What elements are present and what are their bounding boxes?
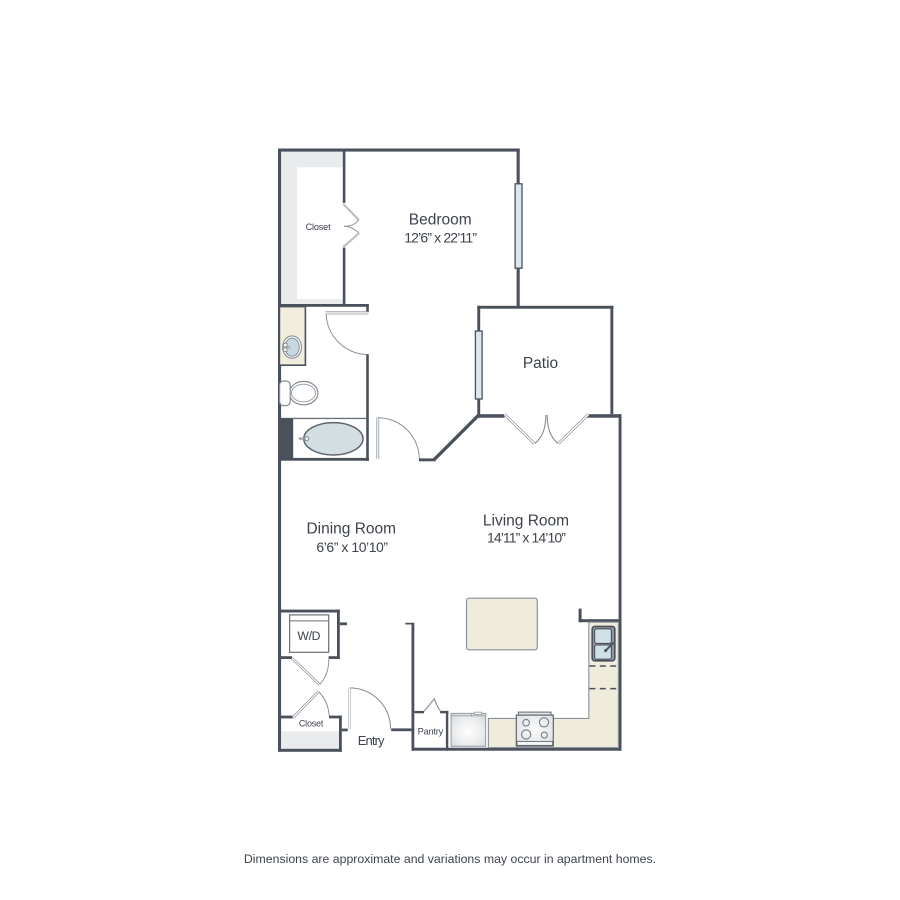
svg-text:Patio: Patio <box>523 355 558 372</box>
svg-text:Dining Room: Dining Room <box>306 520 396 537</box>
svg-text:Pantry: Pantry <box>418 727 444 737</box>
svg-text:Bedroom: Bedroom <box>409 212 472 229</box>
svg-text:Entry: Entry <box>358 733 385 748</box>
svg-text:Living Room: Living Room <box>483 512 569 529</box>
svg-text:6’6” x 10’10”: 6’6” x 10’10” <box>316 539 388 555</box>
svg-text:Closet: Closet <box>306 222 331 232</box>
svg-text:W/D: W/D <box>297 629 320 643</box>
svg-text:12’6” x 22’11”: 12’6” x 22’11” <box>404 230 477 246</box>
svg-text:Dimensions are approximate and: Dimensions are approximate and variation… <box>244 852 656 866</box>
svg-text:14’11” x 14’10”: 14’11” x 14’10” <box>487 529 566 545</box>
svg-text:Closet: Closet <box>299 718 324 728</box>
